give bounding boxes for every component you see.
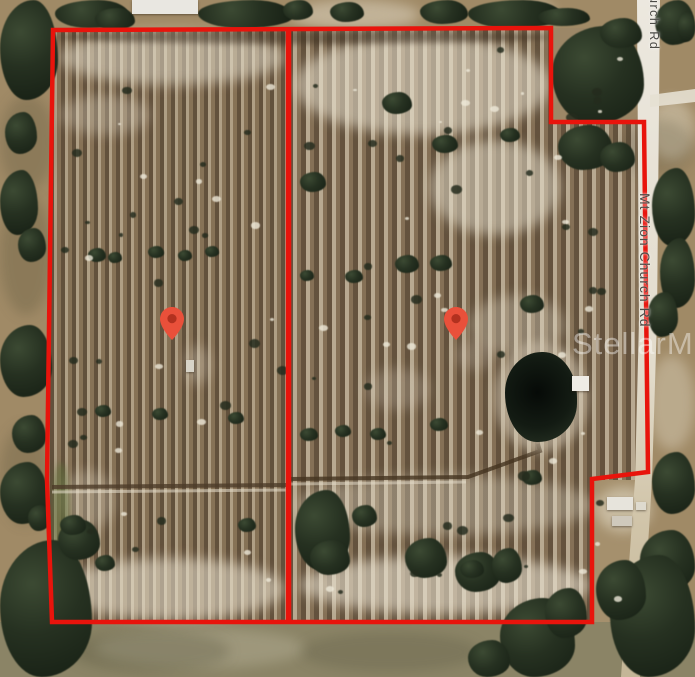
satellite-map[interactable]: urch Rd Mt Zion Church Rd StellarMLS — [0, 0, 695, 677]
road-label-mt-zion-church-rd: Mt Zion Church Rd — [637, 193, 653, 327]
parcel-boundary — [47, 28, 648, 622]
road-label-partial: urch Rd — [647, 0, 661, 50]
stellar-mls-watermark: StellarMLS — [572, 326, 695, 362]
map-pin-east — [444, 307, 468, 341]
map-pin-west — [160, 307, 184, 341]
